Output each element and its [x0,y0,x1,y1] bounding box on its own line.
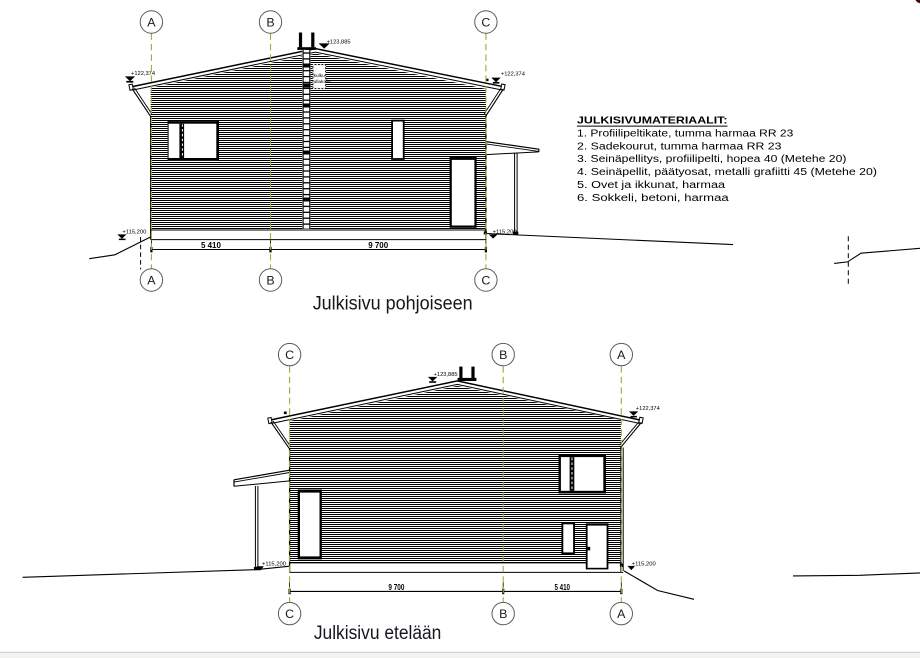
svg-text:JULKISIVUMATERIAALIT:: JULKISIVUMATERIAALIT: [577,116,728,127]
svg-text:+115,200: +115,200 [493,229,517,235]
svg-text:+115,200: +115,200 [632,561,656,567]
svg-text:A: A [617,607,626,621]
svg-text:kulku: kulku [314,73,326,79]
svg-text:+115,200: +115,200 [262,561,286,567]
svg-text:5 410: 5 410 [201,240,221,250]
svg-text:B: B [266,15,274,29]
svg-text:2. Sadekourut, tumma harmaa RR: 2. Sadekourut, tumma harmaa RR 23 [577,141,782,152]
svg-text:9 700: 9 700 [388,582,404,592]
svg-text:C: C [285,348,294,362]
svg-text:B: B [266,273,274,287]
svg-text:C: C [481,273,490,287]
svg-text:+123,885: +123,885 [327,40,351,46]
svg-text:1. Profiilipeltikate, tumma ha: 1. Profiilipeltikate, tumma harmaa RR 23 [577,128,794,139]
svg-text:6. Sokkeli, betoni, harmaa: 6. Sokkeli, betoni, harmaa [577,193,729,204]
svg-text:A: A [147,273,156,287]
svg-text:Julkisivu etelään: Julkisivu etelään [314,623,442,644]
svg-text:5. Ovet ja ikkunat, harmaa: 5. Ovet ja ikkunat, harmaa [577,180,726,191]
svg-text:B: B [499,348,507,362]
svg-text:3. Seinäpellitys, profiilipelt: 3. Seinäpellitys, profiilipelti, hopea 4… [577,154,846,165]
svg-text:Julkisivu pohjoiseen: Julkisivu pohjoiseen [313,294,473,315]
svg-text:B: B [499,607,507,621]
svg-text:+122,374: +122,374 [131,71,156,77]
svg-text:ullakolle: ullakolle [314,79,332,85]
svg-text:9 700: 9 700 [368,240,388,250]
svg-text:+122,374: +122,374 [501,71,526,77]
svg-text:A: A [617,348,626,362]
svg-text:C: C [285,607,294,621]
svg-text:+122,374: +122,374 [636,406,661,412]
svg-text:A: A [147,15,156,29]
svg-text:4. Seinäpellit, päätyosat, met: 4. Seinäpellit, päätyosat, metalli grafi… [577,167,877,178]
svg-text:5 410: 5 410 [555,582,571,592]
svg-text:C: C [481,15,490,29]
